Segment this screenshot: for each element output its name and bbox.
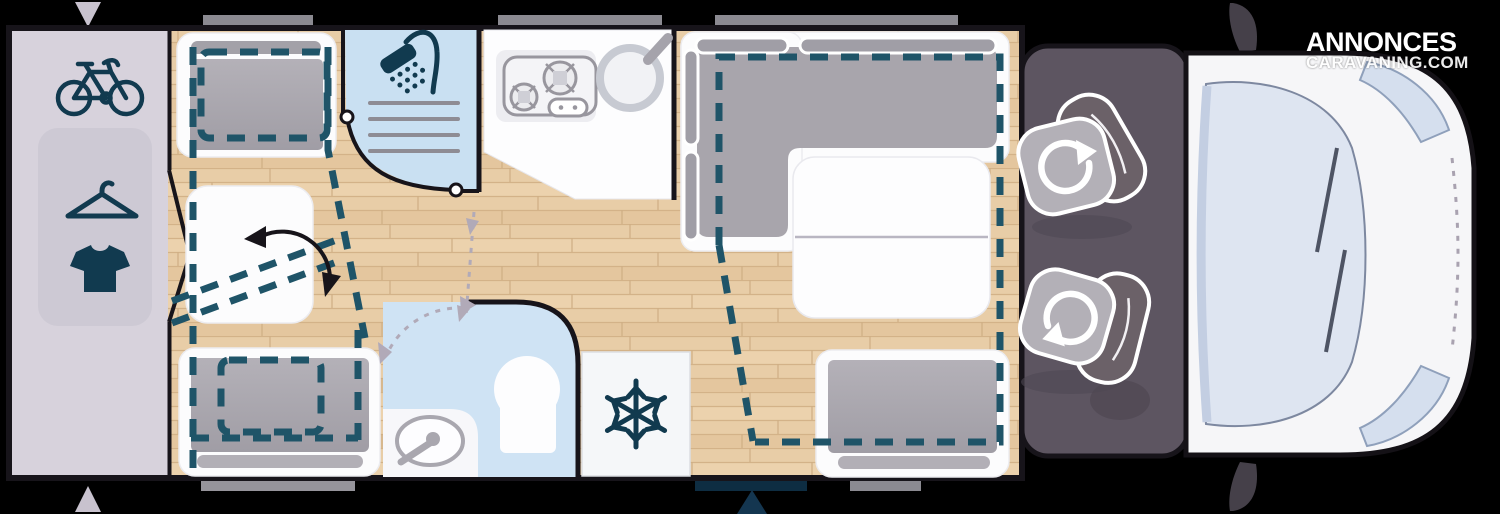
vanity-sink-icon: [397, 417, 463, 465]
headboard-pill: [838, 456, 990, 469]
headrest-pill: [696, 38, 788, 53]
headboard-pill: [197, 455, 363, 468]
dinette-table: [793, 157, 990, 318]
side-mirror-top: [1229, 3, 1257, 52]
wardrobe-box: [38, 128, 152, 326]
headrest-pill: [800, 38, 996, 53]
watermark-line2: CARAVANING.COM: [1306, 55, 1469, 71]
floor-plan-svg: [0, 0, 1500, 514]
garage-area: [12, 28, 188, 478]
door-hinge: [341, 111, 353, 123]
garage-arrow-top: [75, 2, 101, 27]
windshield: [1199, 82, 1366, 426]
cab-seats-area: [1013, 46, 1188, 456]
fridge: [582, 352, 690, 476]
motorhome-floor-plan: ANNONCES CARAVANING.COM: [0, 0, 1500, 514]
cab-front: [1186, 3, 1474, 511]
garage-arrow-bottom: [75, 486, 101, 512]
entry-door-arrow: [737, 490, 767, 514]
stove-icon: [496, 50, 596, 122]
coach-body: [9, 28, 1022, 478]
door-hinge: [450, 184, 462, 196]
watermark-line1: ANNONCES: [1306, 30, 1469, 56]
headrest-pill: [684, 152, 698, 240]
bathroom: [378, 296, 578, 477]
toilet: [494, 356, 560, 422]
rear-bench: [816, 350, 1009, 477]
side-mirror-bottom: [1229, 462, 1257, 511]
watermark: ANNONCES CARAVANING.COM: [1306, 30, 1469, 71]
bunk-bed-bottom: [179, 348, 380, 476]
headrest-pill: [684, 50, 698, 145]
